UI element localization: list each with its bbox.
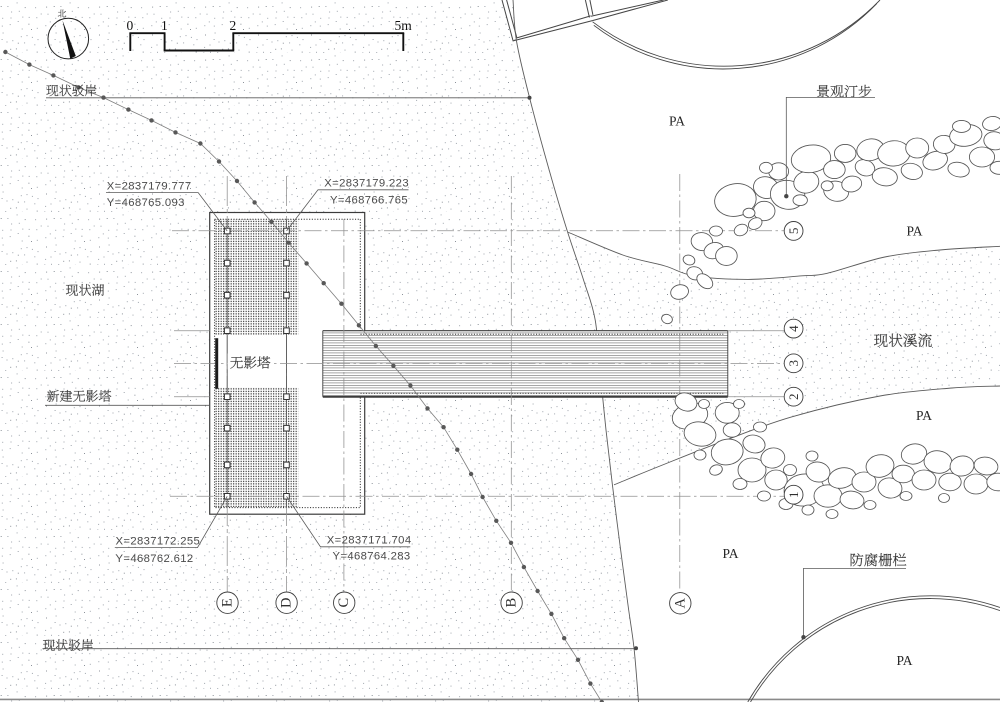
svg-text:D: D (279, 597, 295, 607)
svg-text:X=2837179.777: X=2837179.777 (107, 180, 192, 192)
svg-text:C: C (336, 598, 352, 608)
svg-text:PA: PA (906, 224, 922, 239)
svg-text:X=2837172.255: X=2837172.255 (116, 535, 201, 547)
svg-text:Y=468764.283: Y=468764.283 (333, 550, 411, 562)
svg-text:E: E (220, 598, 236, 607)
svg-text:Y=468766.765: Y=468766.765 (330, 194, 408, 206)
svg-text:5m: 5m (395, 18, 413, 33)
svg-text:2: 2 (786, 393, 801, 400)
svg-text:PA: PA (669, 114, 685, 129)
svg-text:5: 5 (786, 228, 801, 235)
svg-text:PA: PA (896, 653, 912, 668)
svg-text:0: 0 (127, 18, 134, 33)
svg-text:A: A (672, 598, 688, 609)
svg-text:1: 1 (786, 491, 801, 498)
svg-text:B: B (504, 598, 520, 608)
svg-text:Y=468765.093: Y=468765.093 (107, 197, 185, 209)
svg-text:1: 1 (161, 18, 168, 33)
svg-text:PA: PA (722, 546, 738, 561)
svg-text:PA: PA (916, 408, 932, 423)
svg-text:X=2837179.223: X=2837179.223 (324, 178, 409, 190)
svg-text:3: 3 (786, 360, 801, 367)
svg-text:4: 4 (786, 325, 801, 332)
svg-text:X=2837171.704: X=2837171.704 (327, 535, 412, 547)
svg-text:2: 2 (230, 18, 237, 33)
svg-text:Y=468762.612: Y=468762.612 (116, 553, 194, 565)
